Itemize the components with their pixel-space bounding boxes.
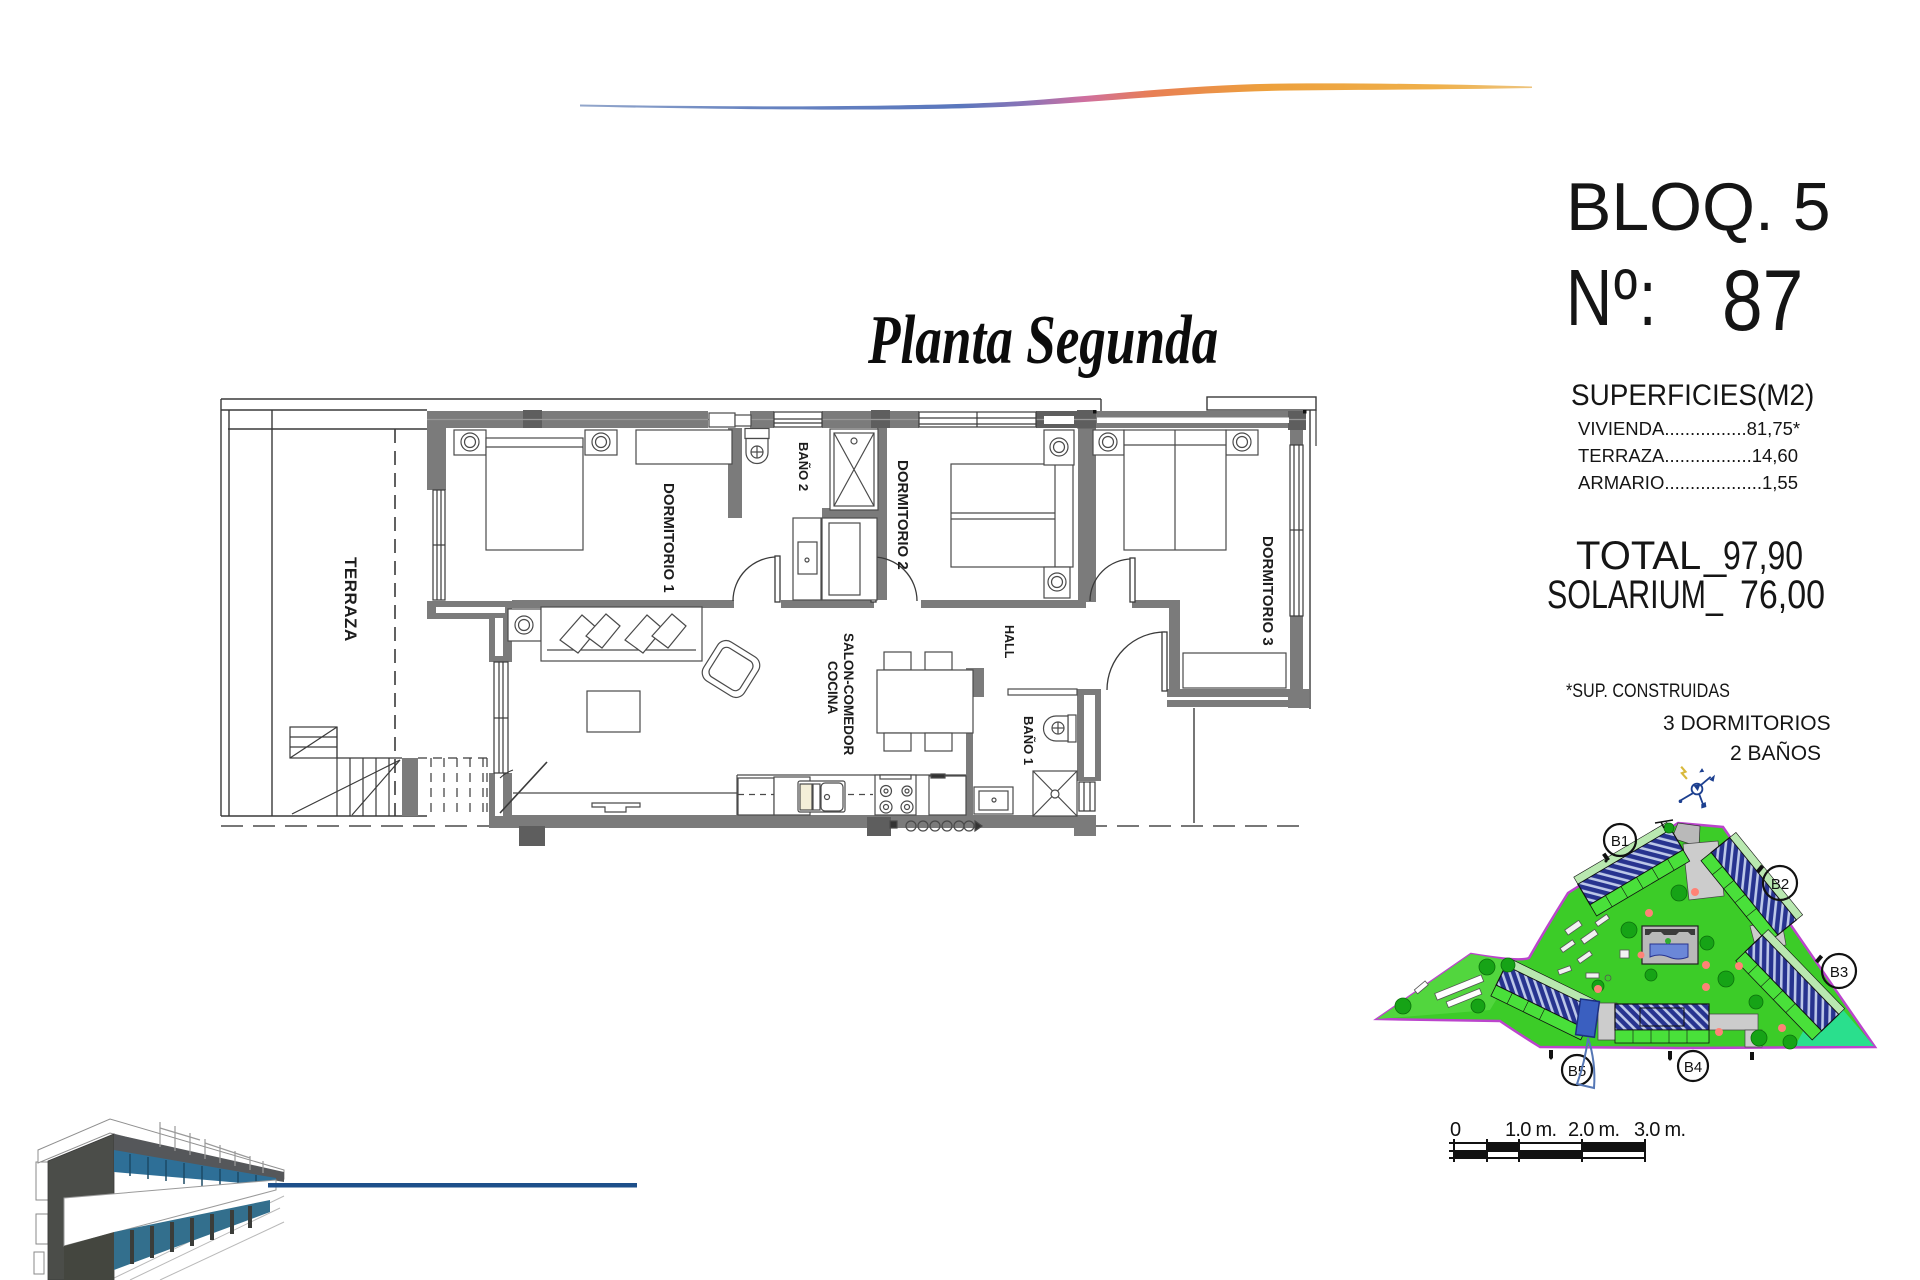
svg-text:2.0 m.: 2.0 m. <box>1568 1119 1620 1141</box>
svg-text:B2: B2 <box>1771 876 1789 893</box>
svg-text:B3: B3 <box>1830 964 1848 981</box>
svg-text:SUPERFICIES(M2): SUPERFICIES(M2) <box>1571 379 1814 412</box>
svg-text:TERRAZA: TERRAZA <box>341 557 360 642</box>
svg-text:3 DORMITORIOS: 3 DORMITORIOS <box>1663 712 1831 735</box>
svg-text:HALL: HALL <box>1002 625 1016 659</box>
svg-text:Planta Segunda: Planta Segunda <box>867 302 1218 379</box>
svg-text:0: 0 <box>1450 1119 1461 1141</box>
svg-text:SOLARIUM_: SOLARIUM_ <box>1547 572 1724 617</box>
svg-text:DORMITORIO 1: DORMITORIO 1 <box>660 483 677 593</box>
svg-text:DORMITORIO 2: DORMITORIO 2 <box>894 460 911 570</box>
svg-text:BAÑO 2: BAÑO 2 <box>796 442 811 491</box>
svg-text:B4: B4 <box>1684 1059 1702 1076</box>
svg-text:*SUP. CONSTRUIDAS: *SUP. CONSTRUIDAS <box>1566 680 1730 702</box>
svg-text:Nº:: Nº: <box>1566 253 1658 342</box>
svg-text:COCINA: COCINA <box>825 661 840 714</box>
svg-text:VIVIENDA................81,75*: VIVIENDA................81,75* <box>1578 418 1800 439</box>
svg-text:SALON-COMEDOR: SALON-COMEDOR <box>841 633 856 755</box>
svg-text:3.0 m.: 3.0 m. <box>1634 1119 1686 1141</box>
svg-text:1.0 m.: 1.0 m. <box>1505 1119 1557 1141</box>
svg-text:87: 87 <box>1722 252 1803 348</box>
svg-text:B1: B1 <box>1611 833 1629 850</box>
svg-text:BLOQ. 5: BLOQ. 5 <box>1566 169 1831 245</box>
svg-text:76,00: 76,00 <box>1740 571 1825 616</box>
svg-text:DORMITORIO 3: DORMITORIO 3 <box>1259 536 1276 646</box>
svg-text:BAÑO 1: BAÑO 1 <box>1021 716 1036 765</box>
svg-text:ARMARIO...................1,55: ARMARIO...................1,55 <box>1578 472 1798 493</box>
svg-text:TERRAZA.................14,60: TERRAZA.................14,60 <box>1578 445 1798 466</box>
svg-text:2 BAÑOS: 2 BAÑOS <box>1730 741 1821 765</box>
